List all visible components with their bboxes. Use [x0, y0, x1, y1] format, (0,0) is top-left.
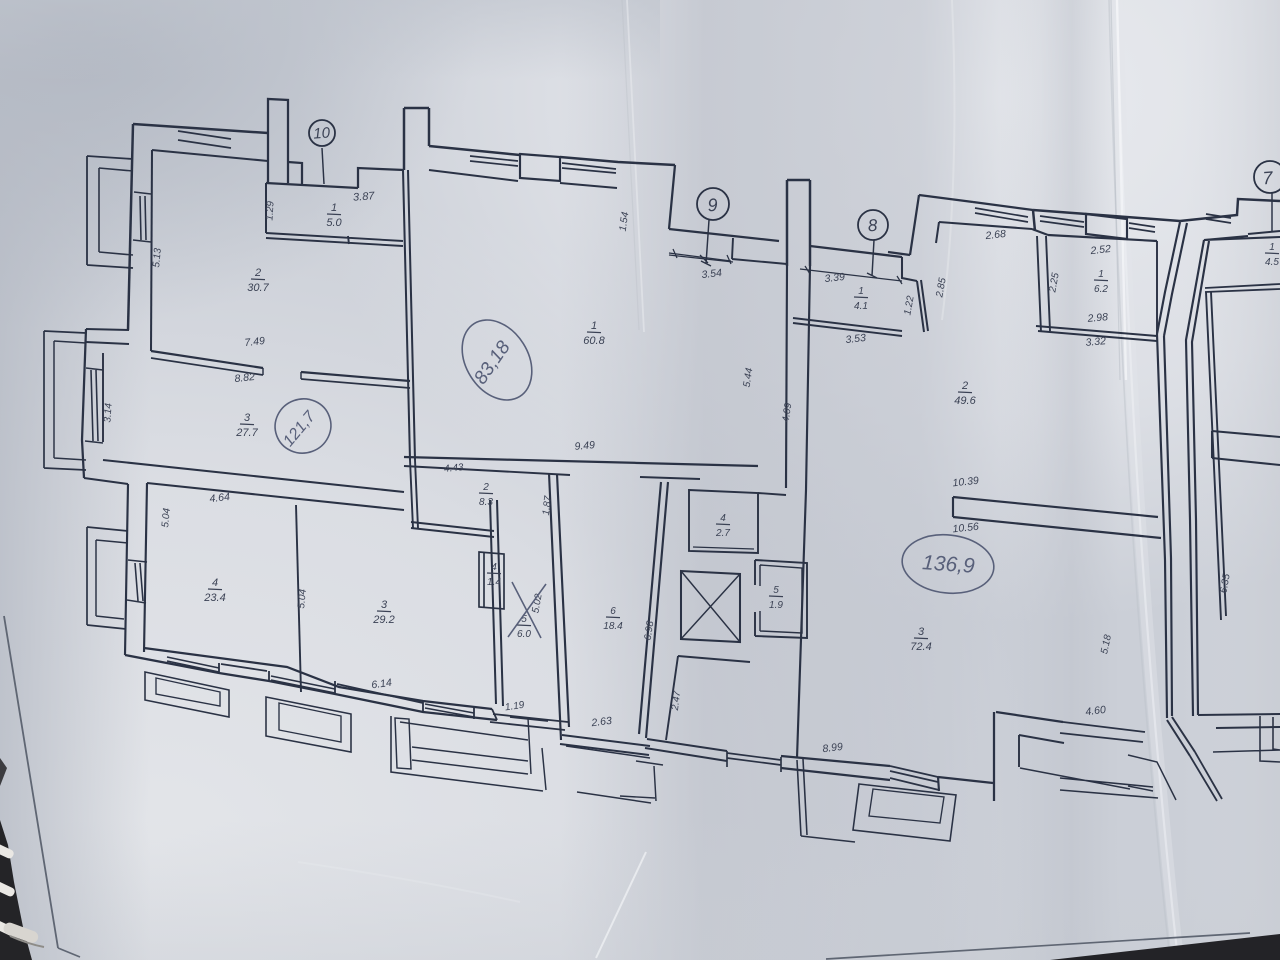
svg-text:1: 1: [331, 202, 337, 214]
svg-text:8.99: 8.99: [822, 741, 844, 755]
svg-text:6.0: 6.0: [517, 629, 531, 640]
svg-text:49.6: 49.6: [954, 395, 976, 407]
svg-text:3: 3: [244, 412, 251, 424]
svg-text:5: 5: [773, 585, 779, 596]
svg-text:2.98: 2.98: [1086, 311, 1109, 325]
svg-text:1: 1: [858, 286, 864, 297]
svg-text:4.60: 4.60: [1085, 704, 1107, 718]
svg-text:3: 3: [381, 599, 388, 611]
svg-text:5.04: 5.04: [296, 588, 309, 609]
svg-text:1.4: 1.4: [487, 577, 501, 588]
svg-text:2: 2: [482, 482, 489, 493]
svg-text:72.4: 72.4: [910, 641, 931, 653]
svg-text:9: 9: [707, 195, 718, 216]
svg-text:2.7: 2.7: [715, 528, 730, 539]
svg-text:136,9: 136,9: [921, 551, 975, 578]
svg-text:23.4: 23.4: [203, 592, 225, 604]
svg-text:4: 4: [720, 513, 726, 524]
svg-text:5.13: 5.13: [151, 247, 164, 268]
svg-text:30.7: 30.7: [247, 282, 269, 294]
svg-text:2: 2: [961, 380, 968, 392]
svg-text:2.68: 2.68: [984, 228, 1007, 242]
svg-text:29.2: 29.2: [372, 614, 394, 626]
svg-text:7.49: 7.49: [244, 335, 266, 349]
svg-text:4.5: 4.5: [1265, 257, 1279, 268]
svg-text:3.54: 3.54: [701, 267, 723, 281]
svg-text:8.3: 8.3: [479, 497, 493, 508]
svg-text:2: 2: [254, 267, 261, 279]
svg-text:3.53: 3.53: [845, 332, 867, 346]
svg-text:4.43: 4.43: [444, 462, 465, 475]
svg-text:8: 8: [867, 216, 878, 236]
svg-text:6: 6: [610, 606, 616, 617]
svg-text:4: 4: [212, 577, 218, 589]
svg-text:5.04: 5.04: [160, 507, 173, 528]
svg-text:4.64: 4.64: [209, 491, 231, 505]
svg-text:3.32: 3.32: [1085, 335, 1107, 349]
svg-text:27.7: 27.7: [235, 427, 258, 439]
svg-text:3: 3: [918, 626, 925, 638]
svg-text:60.8: 60.8: [583, 335, 605, 347]
svg-text:1.29: 1.29: [264, 200, 276, 221]
svg-text:1: 1: [591, 320, 597, 332]
svg-text:4: 4: [491, 562, 497, 573]
svg-text:5.0: 5.0: [326, 217, 342, 229]
svg-text:3.87: 3.87: [353, 190, 376, 204]
svg-text:4.1: 4.1: [854, 301, 868, 312]
svg-text:9.49: 9.49: [574, 439, 596, 453]
svg-text:2.52: 2.52: [1089, 243, 1112, 257]
svg-text:8.82: 8.82: [234, 371, 256, 385]
svg-text:1.9: 1.9: [769, 600, 783, 611]
svg-text:1: 1: [1098, 269, 1104, 280]
svg-text:6.2: 6.2: [1094, 284, 1108, 295]
svg-text:10: 10: [313, 124, 331, 142]
svg-text:18.4: 18.4: [603, 621, 623, 632]
svg-text:1: 1: [1269, 242, 1275, 253]
svg-text:3.39: 3.39: [824, 271, 846, 285]
svg-text:3.14: 3.14: [102, 402, 114, 423]
